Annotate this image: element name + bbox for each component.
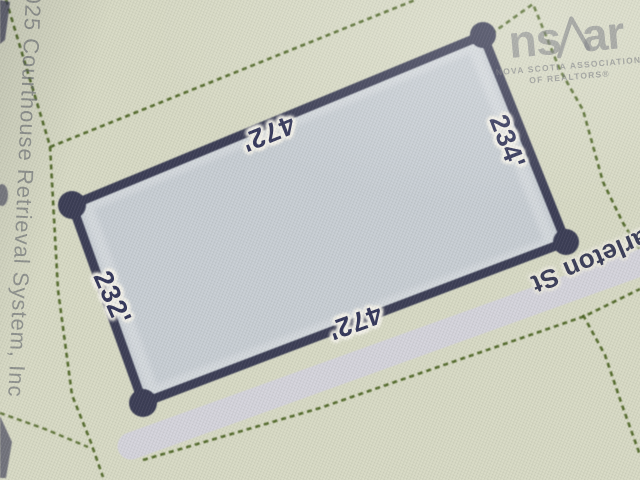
lot-vertex-northwest bbox=[58, 191, 86, 219]
nsar-logo-ar: ar bbox=[580, 9, 625, 58]
parcel-map: 472' 234' 472' 232' arleton St 025 Court… bbox=[0, 0, 640, 480]
lot-vertex-southwest bbox=[129, 389, 157, 417]
boundary-line-southwest-spur bbox=[0, 413, 88, 447]
boundary-line-southeast bbox=[583, 315, 640, 455]
photo-smudge-bottom-left bbox=[0, 416, 12, 478]
photo-smudge-left bbox=[0, 184, 8, 206]
nsar-watermark: ns ar NOVA SCOTIA ASSOCIATION OF REALTOR… bbox=[485, 7, 640, 89]
photo-smudge-top-left bbox=[0, 0, 10, 44]
